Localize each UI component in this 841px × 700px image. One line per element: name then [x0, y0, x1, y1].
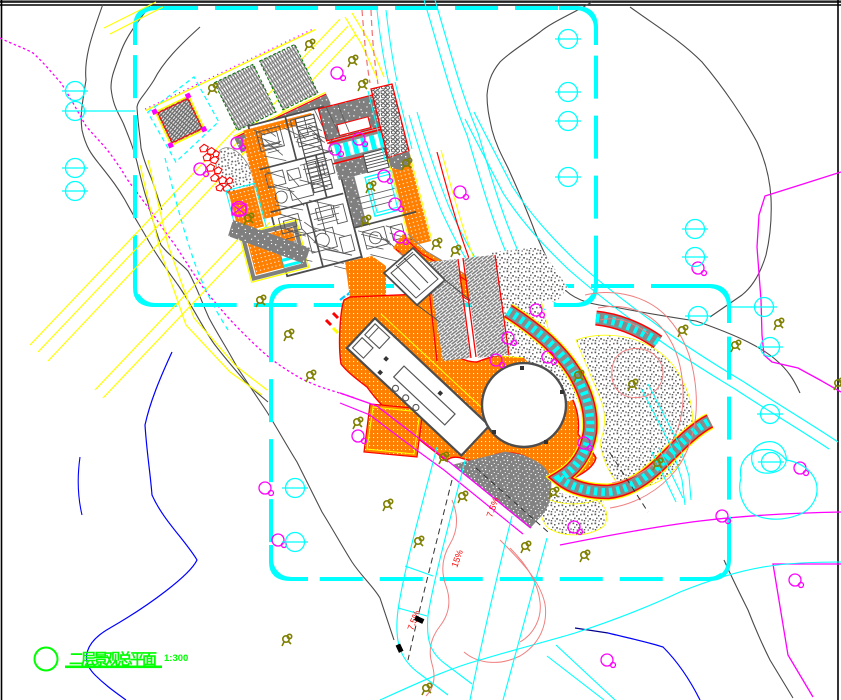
svg-text:二层景观总平面: 二层景观总平面 — [69, 650, 157, 668]
svg-text:1:300: 1:300 — [164, 653, 188, 664]
